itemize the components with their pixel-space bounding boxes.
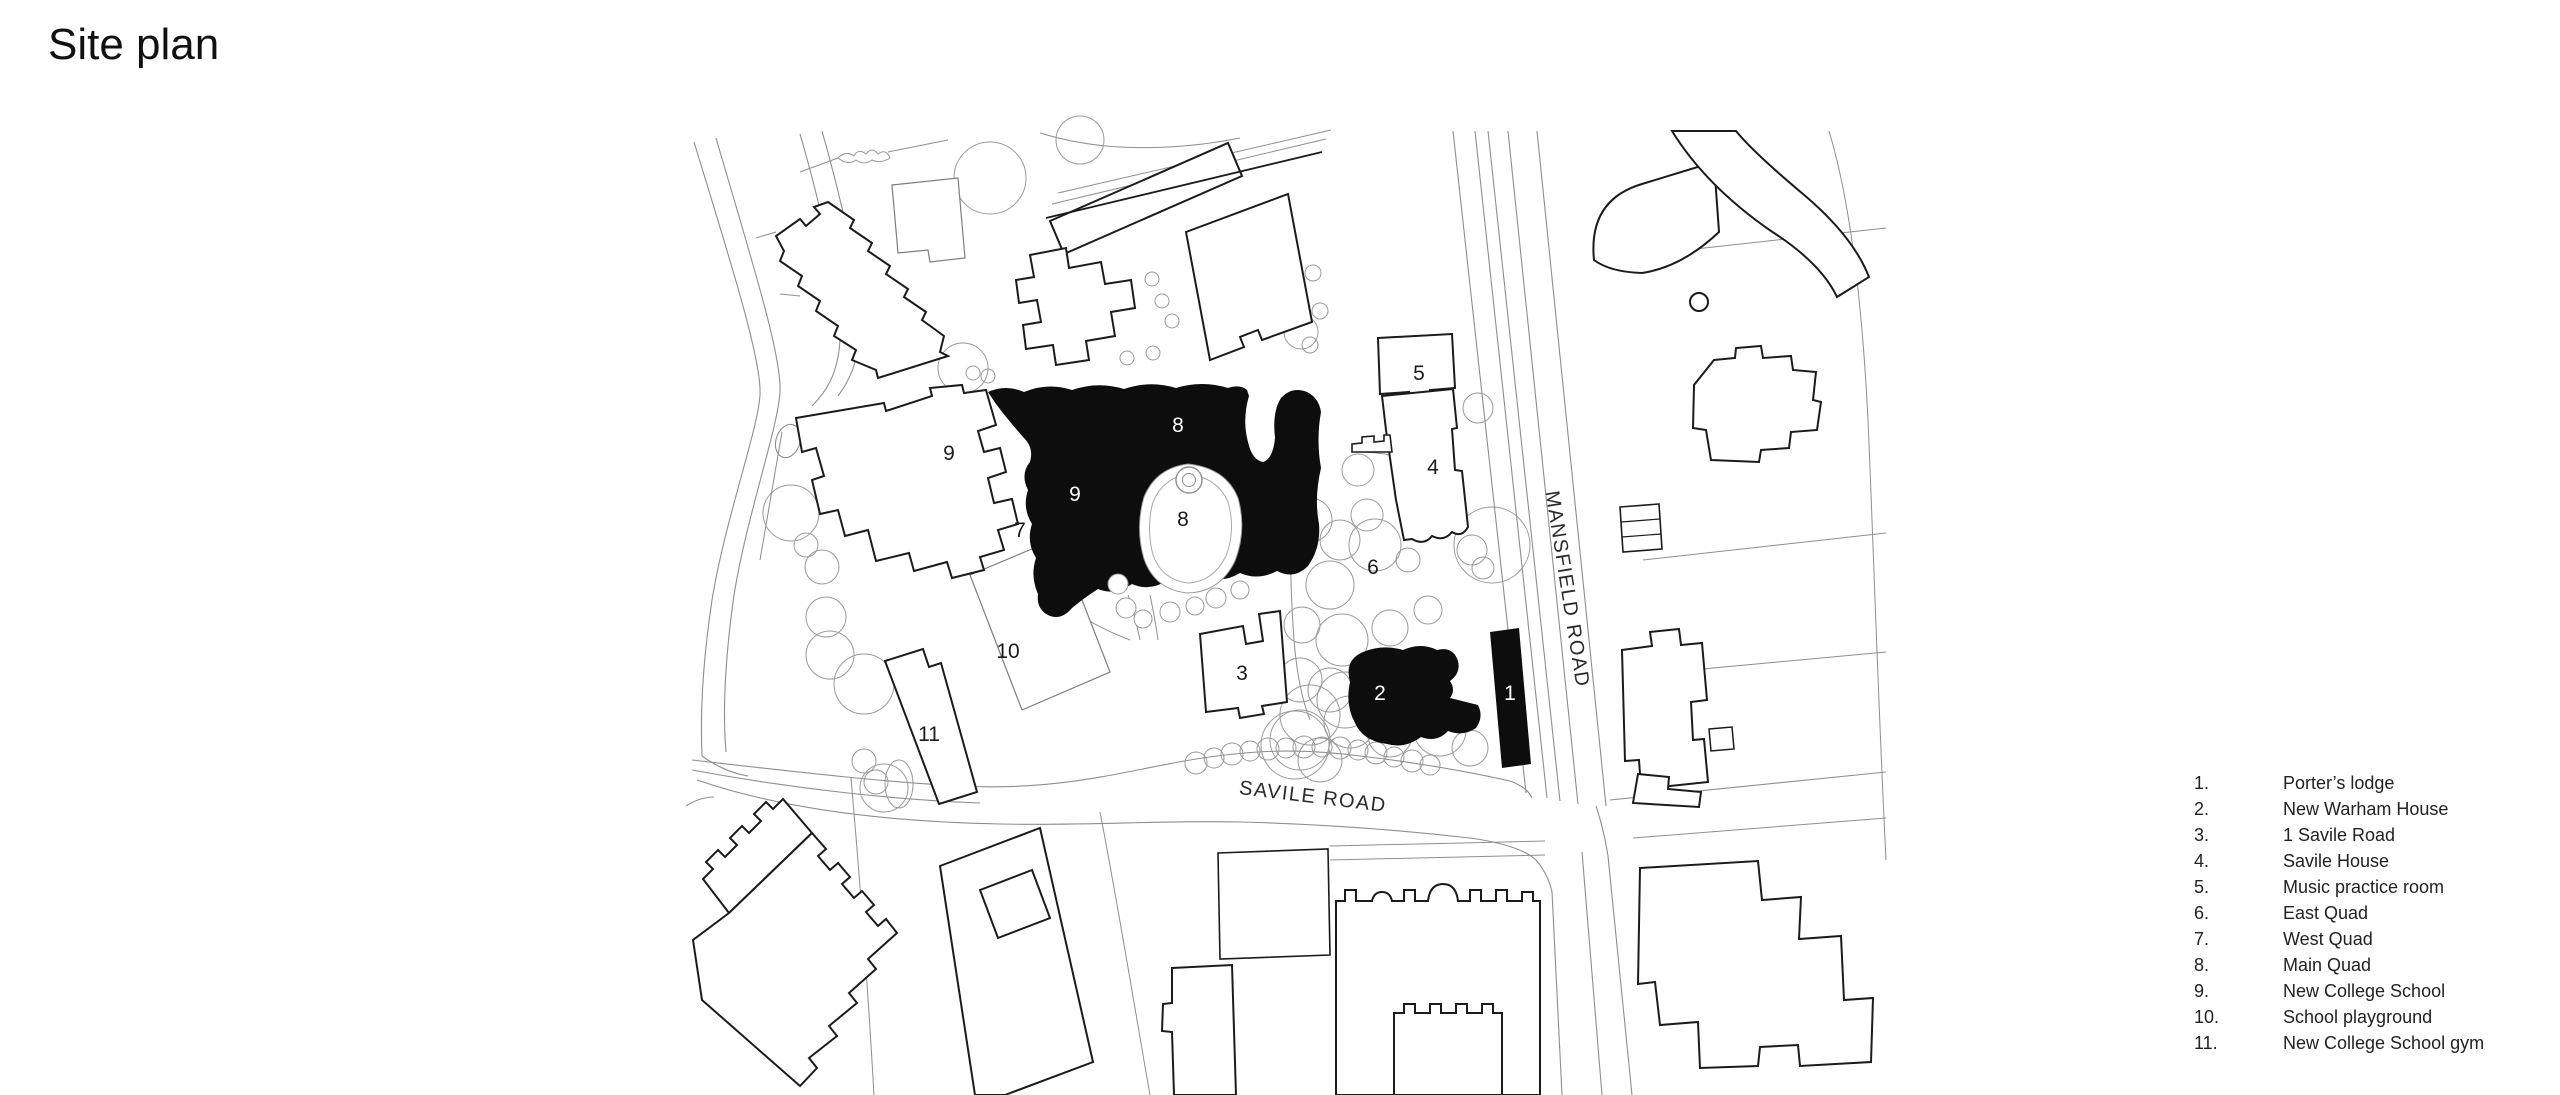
site-plan-drawing: 9 9 7 8 8 10 11 3 2 1 6 4 5 MANSFIELD RO…	[0, 0, 2560, 1095]
legend: 1.Porter’s lodge2.New Warham House3.1 Sa…	[2194, 770, 2484, 1056]
legend-item-label: New College School gym	[2283, 1030, 2484, 1056]
legend-item-label: New College School	[2283, 978, 2445, 1004]
building-label-3: 3	[1236, 662, 1248, 685]
buildings-dark-layer	[693, 131, 1873, 1095]
legend-item-2: 2.New Warham House	[2194, 796, 2484, 822]
legend-item-6: 6.East Quad	[2194, 900, 2484, 926]
legend-item-label: West Quad	[2283, 926, 2373, 952]
legend-item-1: 1.Porter’s lodge	[2194, 770, 2484, 796]
legend-item-number: 8.	[2194, 952, 2283, 978]
legend-item-label: 1 Savile Road	[2283, 822, 2395, 848]
building-label-5: 5	[1413, 362, 1425, 385]
legend-item-11: 11.New College School gym	[2194, 1030, 2484, 1056]
building-label-2: 2	[1374, 682, 1386, 705]
legend-item-label: New Warham House	[2283, 796, 2448, 822]
legend-item-8: 8.Main Quad	[2194, 952, 2484, 978]
legend-item-label: Music practice room	[2283, 874, 2444, 900]
legend-item-number: 10.	[2194, 1004, 2283, 1030]
road-label-mansfield: MANSFIELD ROAD	[1541, 489, 1594, 689]
building-label-10: 10	[996, 640, 1019, 663]
building-label-9-school: 9	[943, 442, 955, 465]
building-label-11: 11	[918, 723, 940, 746]
legend-item-number: 5.	[2194, 874, 2283, 900]
legend-item-number: 7.	[2194, 926, 2283, 952]
building-label-6: 6	[1367, 556, 1379, 579]
legend-item-number: 3.	[2194, 822, 2283, 848]
legend-item-label: Savile House	[2283, 848, 2389, 874]
legend-item-9: 9.New College School	[2194, 978, 2484, 1004]
site-plan-page: Site plan	[0, 0, 2560, 1095]
building-label-1: 1	[1504, 682, 1516, 705]
legend-item-number: 9.	[2194, 978, 2283, 1004]
legend-item-5: 5.Music practice room	[2194, 874, 2484, 900]
building-label-9-black: 9	[1069, 483, 1081, 506]
legend-item-4: 4.Savile House	[2194, 848, 2484, 874]
building-label-7: 7	[1014, 519, 1026, 542]
legend-item-label: East Quad	[2283, 900, 2368, 926]
legend-item-10: 10.School playground	[2194, 1004, 2484, 1030]
legend-item-number: 2.	[2194, 796, 2283, 822]
legend-item-number: 4.	[2194, 848, 2283, 874]
legend-item-label: School playground	[2283, 1004, 2432, 1030]
legend-item-number: 1.	[2194, 770, 2283, 796]
legend-item-label: Main Quad	[2283, 952, 2371, 978]
legend-item-label: Porter’s lodge	[2283, 770, 2394, 796]
building-label-8-upper: 8	[1172, 414, 1184, 437]
legend-item-3: 3.1 Savile Road	[2194, 822, 2484, 848]
legend-item-number: 11.	[2194, 1030, 2283, 1056]
building-label-8-courtyard: 8	[1177, 508, 1189, 531]
legend-item-7: 7.West Quad	[2194, 926, 2484, 952]
road-label-savile: SAVILE ROAD	[1238, 777, 1388, 817]
building-label-4: 4	[1427, 456, 1439, 479]
legend-item-number: 6.	[2194, 900, 2283, 926]
